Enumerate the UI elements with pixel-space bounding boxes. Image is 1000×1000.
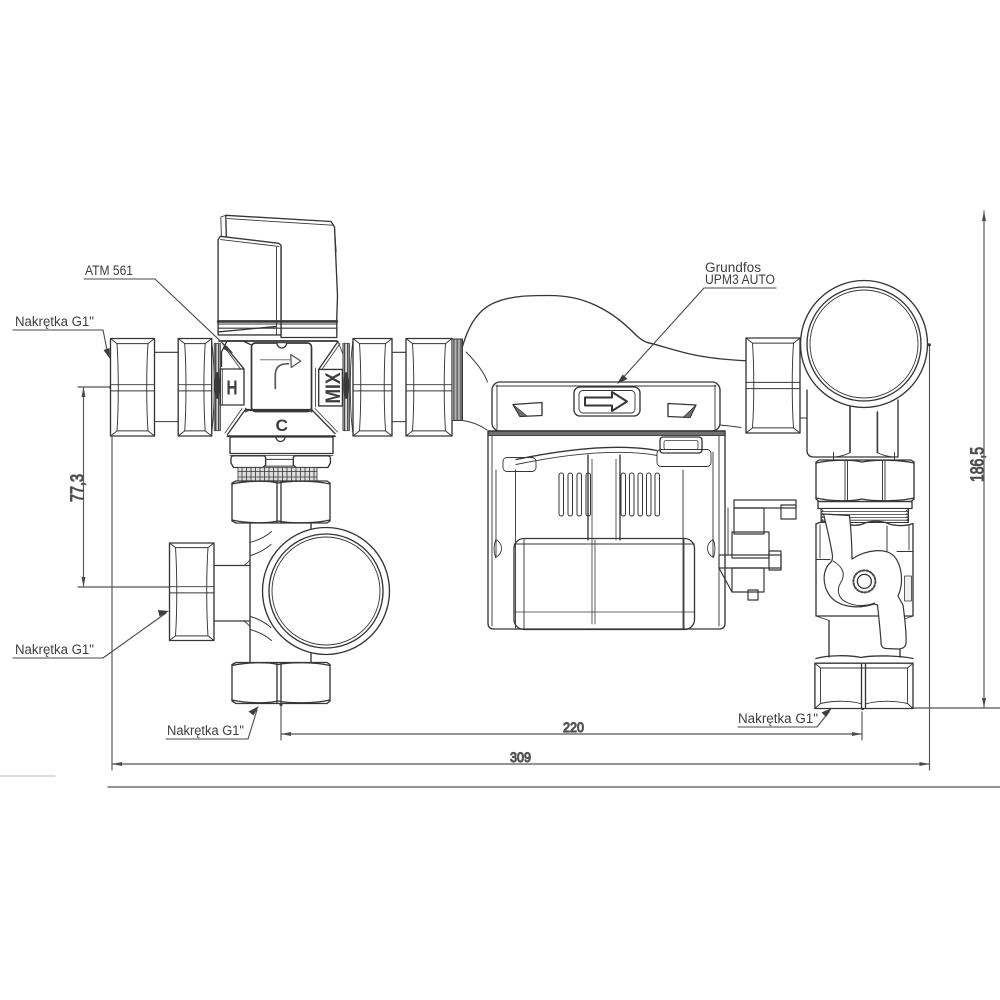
svg-text:Nakrętka G1": Nakrętka G1" — [738, 711, 818, 726]
svg-text:UPM3 AUTO: UPM3 AUTO — [705, 272, 775, 287]
svg-text:Nakrętka G1": Nakrętka G1" — [167, 723, 244, 738]
svg-text:309: 309 — [510, 749, 531, 765]
svg-text:77,3: 77,3 — [68, 474, 88, 502]
svg-text:186,5: 186,5 — [967, 447, 988, 482]
svg-text:ATM 561: ATM 561 — [85, 263, 133, 278]
svg-text:Nakrętka G1": Nakrętka G1" — [15, 642, 94, 657]
svg-text:C: C — [276, 416, 289, 435]
svg-text:220: 220 — [563, 719, 584, 735]
svg-text:H: H — [227, 378, 238, 400]
svg-text:Nakrętka G1": Nakrętka G1" — [15, 314, 94, 329]
svg-text:MIX: MIX — [322, 373, 345, 404]
